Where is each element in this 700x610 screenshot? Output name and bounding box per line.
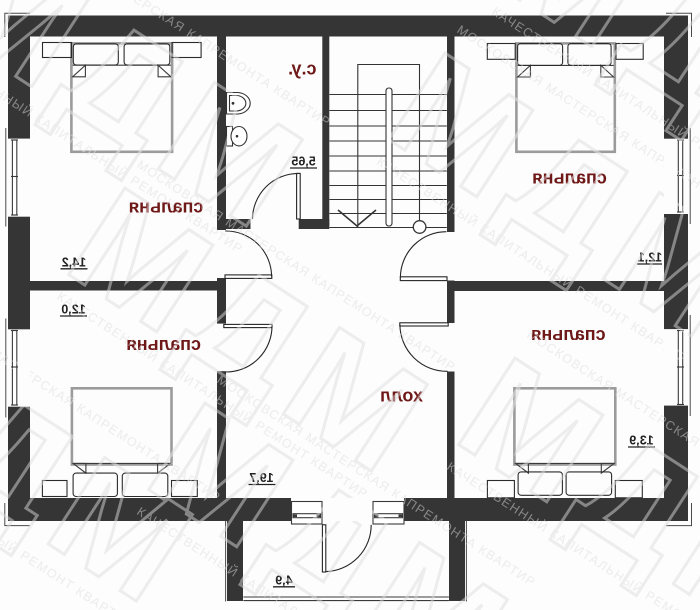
svg-text:с.у.: с.у. bbox=[288, 59, 316, 79]
